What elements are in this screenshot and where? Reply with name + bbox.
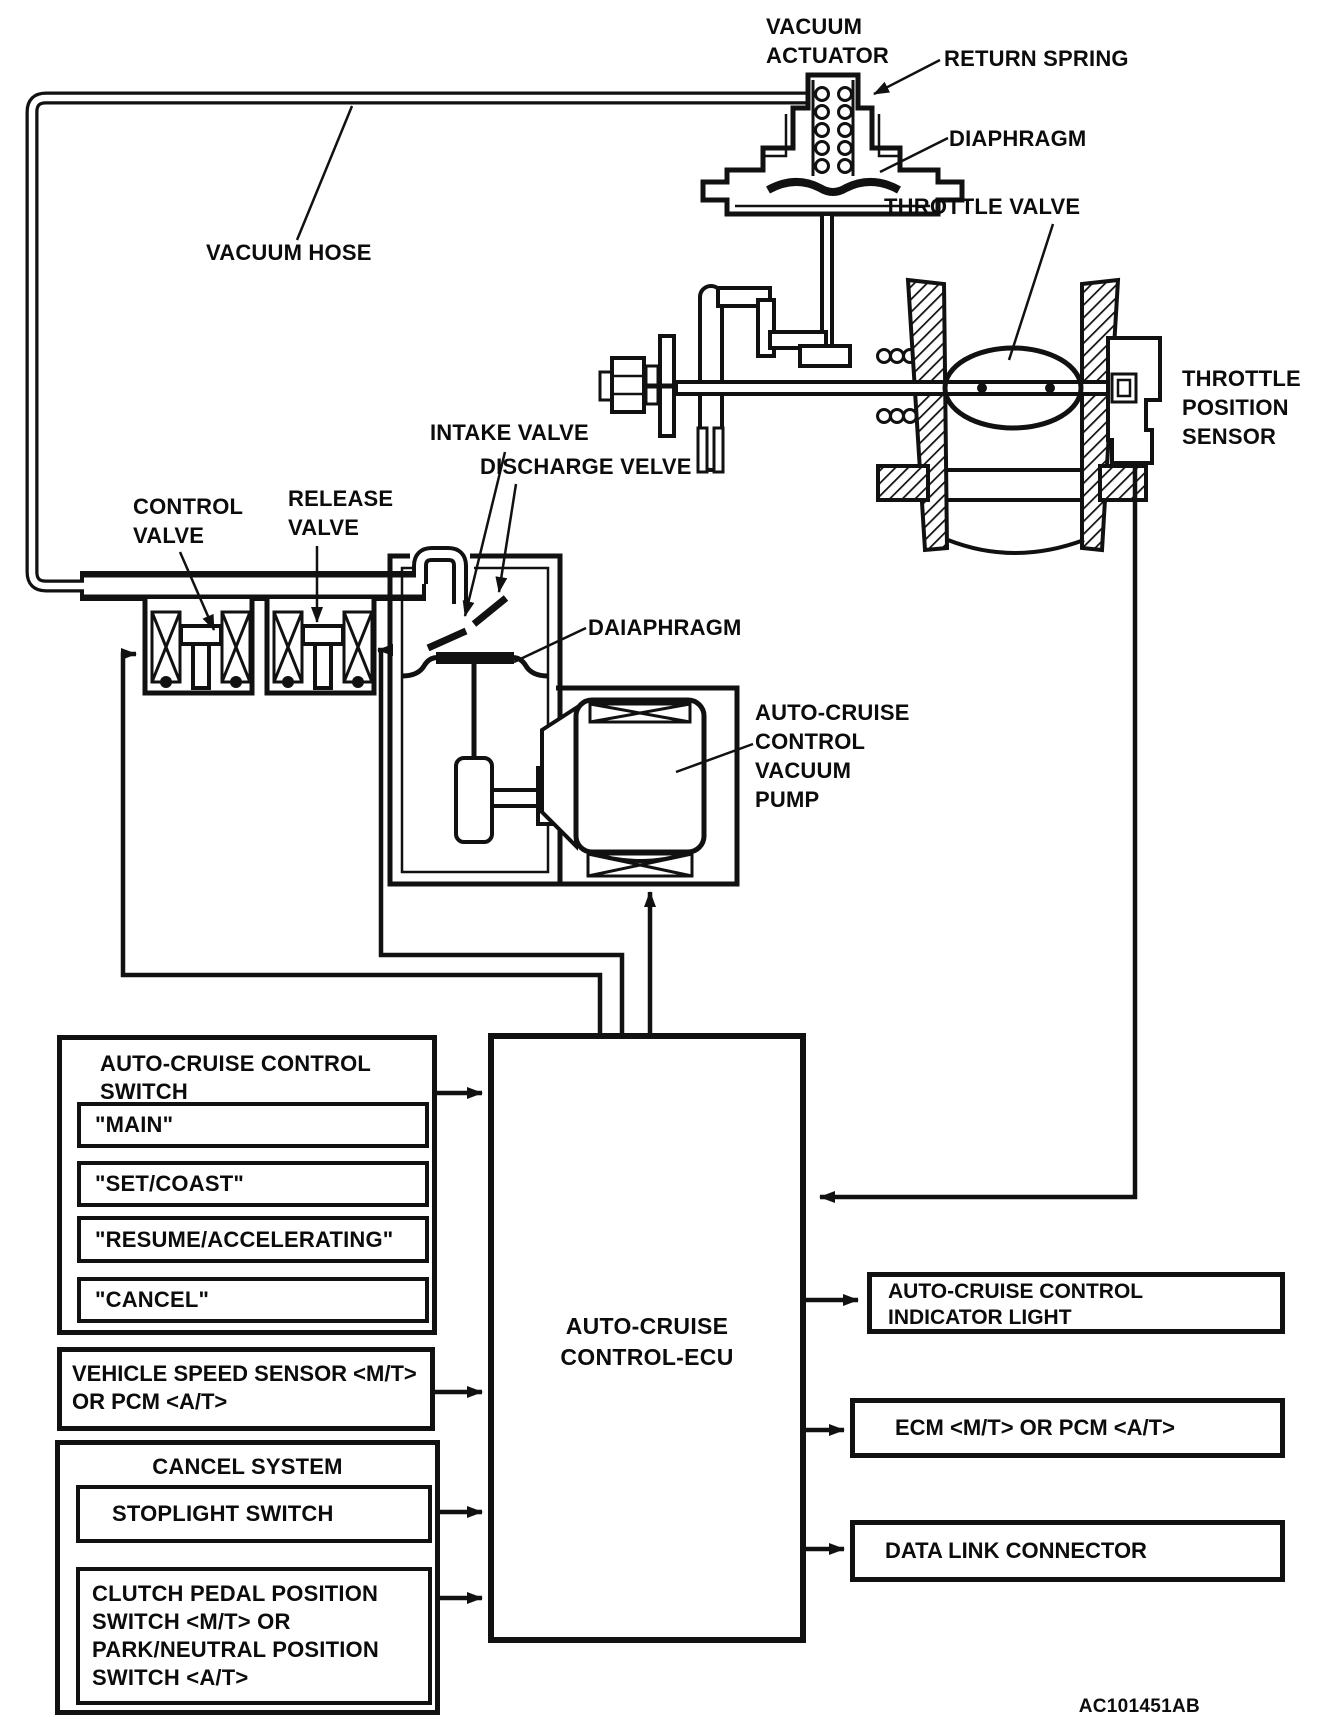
intake-valve-label: INTAKE VALVE (430, 418, 589, 447)
throttle-position-sensor-body (1108, 338, 1160, 463)
pump-diaphragm-label: DAIAPHRAGM (588, 613, 742, 642)
auto-cruise-switch-box: AUTO-CRUISE CONTROLSWITCH "MAIN" "SET/CO… (57, 1035, 437, 1335)
ecu-label: AUTO-CRUISECONTROL-ECU (494, 1311, 800, 1373)
stoplight-switch-box: STOPLIGHT SWITCH (76, 1485, 432, 1543)
switch-main: "MAIN" (77, 1102, 429, 1148)
vacuum-actuator-label: VACUUMACTUATOR (766, 12, 889, 70)
throttle-body (676, 280, 1146, 553)
control-valve-assembly (145, 598, 252, 693)
return-spring-label: RETURN SPRING (944, 44, 1129, 73)
ecu-box: AUTO-CRUISECONTROL-ECU (488, 1033, 806, 1643)
throttle-position-sensor-label: THROTTLEPOSITIONSENSOR (1182, 364, 1301, 451)
switch-resume-accel: "RESUME/ACCELERATING" (77, 1216, 429, 1263)
data-link-connector-box: DATA LINK CONNECTOR (850, 1520, 1285, 1582)
control-valve-label: CONTROLVALVE (133, 492, 243, 550)
vehicle-speed-sensor-label: VEHICLE SPEED SENSOR <M/T>OR PCM <A/T> (72, 1360, 417, 1416)
vacuum-pump-label: AUTO-CRUISECONTROLVACUUMPUMP (755, 698, 910, 814)
vacuum-pump-assembly (390, 556, 737, 884)
throttle-valve-label: THROTTLE VALVE (884, 192, 1080, 221)
throttle-shaft (676, 382, 1108, 394)
throttle-valve-leader (1009, 224, 1053, 360)
indicator-light-box: AUTO-CRUISE CONTROLINDICATOR LIGHT (867, 1272, 1285, 1334)
cancel-system-title: CANCEL SYSTEM (60, 1453, 435, 1481)
ecm-pcm-box: ECM <M/T> OR PCM <A/T> (850, 1398, 1285, 1458)
vacuum-hose-label: VACUUM HOSE (206, 238, 372, 267)
figure-part-code: AC101451AB (1000, 1696, 1200, 1718)
switch-cancel: "CANCEL" (77, 1277, 429, 1323)
vacuum-hose-leader (297, 106, 352, 240)
discharge-valve-label: DISCHARGE VELVE (480, 452, 692, 481)
throttle-linkage (600, 286, 930, 472)
indicator-light-label: AUTO-CRUISE CONTROLINDICATOR LIGHT (888, 1279, 1143, 1331)
pump-diaphragm-leader (514, 628, 586, 662)
diaphragm-label: DIAPHRAGM (949, 124, 1086, 153)
ecm-pcm-label: ECM <M/T> OR PCM <A/T> (855, 1415, 1175, 1441)
discharge-valve-leader (499, 484, 516, 592)
switch-set-coast: "SET/COAST" (77, 1161, 429, 1207)
cancel-system-box: CANCEL SYSTEM STOPLIGHT SWITCH CLUTCH PE… (55, 1440, 440, 1715)
tps-wire (820, 463, 1135, 1197)
auto-cruise-switch-title: AUTO-CRUISE CONTROLSWITCH (100, 1050, 371, 1106)
cruise-control-system-diagram: VACUUMACTUATOR RETURN SPRING DIAPHRAGM T… (0, 0, 1328, 1732)
clutch-pedal-box: CLUTCH PEDAL POSITIONSWITCH <M/T> ORPARK… (76, 1567, 432, 1705)
vehicle-speed-sensor-box: VEHICLE SPEED SENSOR <M/T>OR PCM <A/T> (57, 1347, 435, 1431)
release-valve-label: RELEASEVALVE (288, 484, 393, 542)
control-valve-wire (123, 654, 600, 1035)
release-valve-assembly (267, 598, 374, 693)
data-link-connector-label: DATA LINK CONNECTOR (855, 1538, 1147, 1564)
